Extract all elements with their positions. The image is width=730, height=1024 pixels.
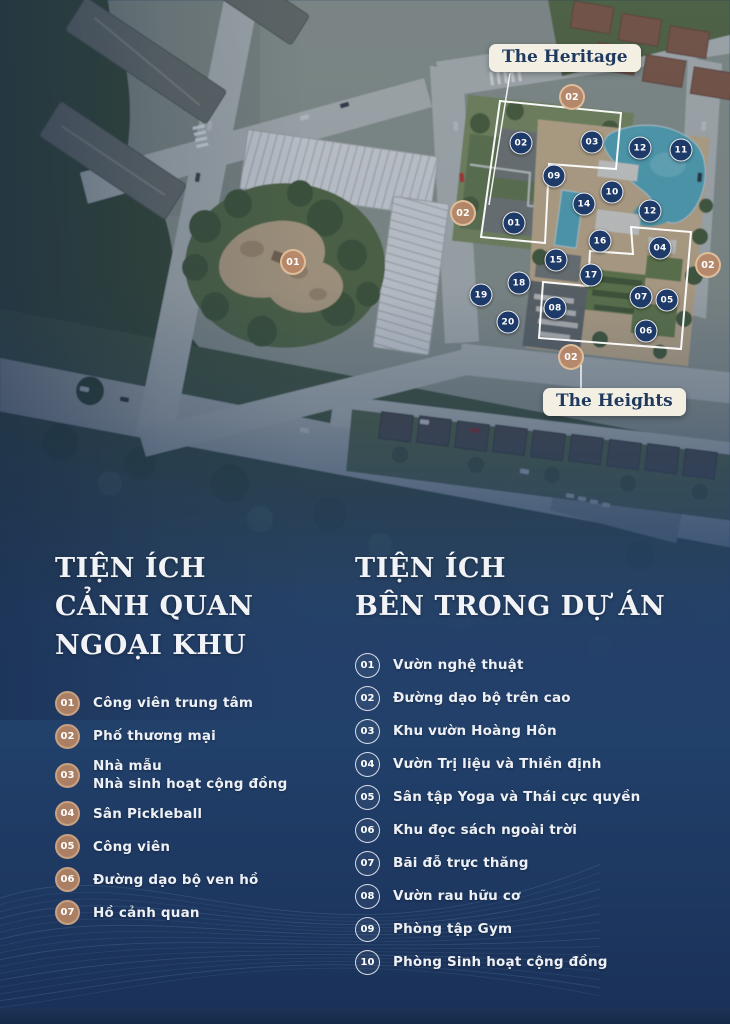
brochure-page: 0203121109101412011604151718190705082006… [0,0,730,1024]
map-marker-10: 10 [601,181,624,204]
map-marker-19: 19 [470,284,493,307]
title-line: TIỆN ÍCH [55,550,330,588]
map-marker-14: 14 [573,193,596,216]
item-number-badge: 01 [355,653,380,678]
map-marker-12: 12 [639,200,662,223]
map-marker-16: 16 [589,230,612,253]
item-number-badge: 02 [55,724,80,749]
list-item: 01Công viên trung tâm [55,691,330,716]
map-marker-09: 09 [543,165,566,188]
title-line: TIỆN ÍCH [355,550,705,588]
item-label: Phố thương mại [93,727,216,745]
item-number-badge: 06 [55,867,80,892]
item-label: Đường dạo bộ trên cao [393,689,571,707]
right-amenity-list: 01Vườn nghệ thuật02Đường dạo bộ trên cao… [355,653,705,975]
list-item: 03Khu vườn Hoàng Hôn [355,719,705,744]
list-item: 02Đường dạo bộ trên cao [355,686,705,711]
item-number-badge: 04 [55,801,80,826]
map-marker-11: 11 [670,139,693,162]
item-number-badge: 05 [355,785,380,810]
map-marker-12: 12 [629,137,652,160]
map-marker-06: 06 [635,320,658,343]
item-label: Sân Pickleball [93,805,202,823]
item-number-badge: 09 [355,917,380,942]
heritage-label: The Heritage [489,44,641,72]
external-amenities-title: TIỆN ÍCH CẢNH QUAN NGOẠI KHU [55,550,330,665]
map-marker-04: 04 [649,237,672,260]
item-label: Vườn nghệ thuật [393,656,524,674]
list-item: 06Khu đọc sách ngoài trời [355,818,705,843]
list-item: 03Nhà mẫu Nhà sinh hoạt cộng đồng [55,757,330,793]
item-label: Đường dạo bộ ven hồ [93,871,259,889]
list-item: 05Sân tập Yoga và Thái cực quyền [355,785,705,810]
map-marker-08: 08 [544,297,567,320]
item-number-badge: 06 [355,818,380,843]
list-item: 05Công viên [55,834,330,859]
list-item: 09Phòng tập Gym [355,917,705,942]
item-label: Phòng Sinh hoạt cộng đồng [393,953,608,971]
list-item: 04Sân Pickleball [55,801,330,826]
map-marker-05: 05 [656,289,679,312]
heights-label: The Heights [543,388,686,416]
item-number-badge: 02 [355,686,380,711]
item-label: Công viên trung tâm [93,694,253,712]
map-marker-07: 07 [630,286,653,309]
list-item: 08Vườn rau hữu cơ [355,884,705,909]
heritage-label-text: The Heritage [502,47,628,67]
internal-amenities-title: TIỆN ÍCH BÊN TRONG DỰ ÁN [355,550,705,627]
item-label: Vườn Trị liệu và Thiền định [393,755,602,773]
item-label: Khu vườn Hoàng Hôn [393,722,557,740]
item-number-badge: 04 [355,752,380,777]
list-item: 10Phòng Sinh hoạt cộng đồng [355,950,705,975]
map-marker-17: 17 [580,264,603,287]
map-marker-02: 02 [510,132,533,155]
map-marker-01: 01 [503,212,526,235]
heights-label-text: The Heights [556,391,673,411]
item-label: Hồ cảnh quan [93,904,200,922]
title-line: BÊN TRONG DỰ ÁN [355,588,705,626]
item-number-badge: 03 [355,719,380,744]
map-marker-02: 02 [558,344,584,370]
map-marker-02: 02 [559,84,585,110]
list-item: 07Bãi đỗ trực thăng [355,851,705,876]
map-marker-03: 03 [581,131,604,154]
map-marker-18: 18 [508,272,531,295]
list-item: 04Vườn Trị liệu và Thiền định [355,752,705,777]
footer-band [0,1008,730,1024]
item-number-badge: 07 [55,900,80,925]
item-number-badge: 01 [55,691,80,716]
item-label: Sân tập Yoga và Thái cực quyền [393,788,640,806]
internal-amenities-section: TIỆN ÍCH BÊN TRONG DỰ ÁN 01Vườn nghệ thu… [355,550,705,983]
map-marker-15: 15 [545,249,568,272]
map-marker-02: 02 [450,200,476,226]
left-amenity-list: 01Công viên trung tâm02Phố thương mại03N… [55,691,330,925]
list-item: 01Vườn nghệ thuật [355,653,705,678]
map-marker-02: 02 [695,252,721,278]
item-label: Vườn rau hữu cơ [393,887,521,905]
title-line: NGOẠI KHU [55,627,330,665]
item-label: Khu đọc sách ngoài trời [393,821,577,839]
item-number-badge: 05 [55,834,80,859]
item-number-badge: 07 [355,851,380,876]
map-marker-01: 01 [280,249,306,275]
item-number-badge: 08 [355,884,380,909]
item-number-badge: 03 [55,763,80,788]
list-item: 07Hồ cảnh quan [55,900,330,925]
list-item: 06Đường dạo bộ ven hồ [55,867,330,892]
item-label: Nhà mẫu Nhà sinh hoạt cộng đồng [93,757,288,793]
item-number-badge: 10 [355,950,380,975]
list-item: 02Phố thương mại [55,724,330,749]
item-label: Phòng tập Gym [393,920,512,938]
map-marker-20: 20 [497,311,520,334]
external-amenities-section: TIỆN ÍCH CẢNH QUAN NGOẠI KHU 01Công viên… [55,550,330,933]
item-label: Bãi đỗ trực thăng [393,854,529,872]
item-label: Công viên [93,838,170,856]
title-line: CẢNH QUAN [55,588,330,626]
